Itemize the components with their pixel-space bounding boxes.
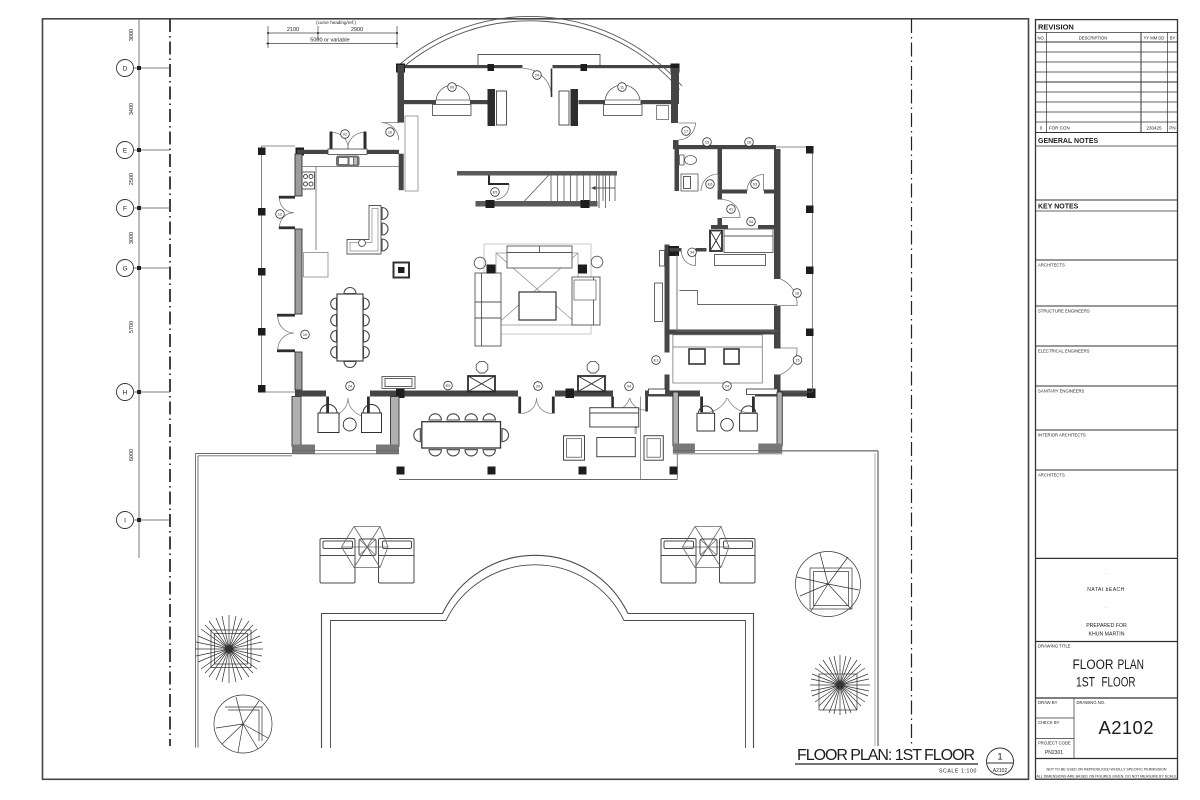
svg-text:E6: E6 (708, 182, 713, 186)
svg-text:E5: E5 (493, 190, 498, 194)
svg-text:·: · (1105, 605, 1107, 610)
svg-text:STRUCTURE ENGINEERS: STRUCTURE ENGINEERS (1038, 309, 1090, 314)
svg-text:E1: E1 (654, 358, 659, 362)
svg-text:I: I (124, 517, 126, 524)
svg-text:D: D (123, 65, 128, 72)
svg-text:ARCHITECTS: ARCHITECTS (1038, 473, 1065, 478)
svg-text:230425: 230425 (1146, 126, 1162, 131)
svg-text:10: 10 (388, 130, 392, 134)
svg-text:KHUN MARTIN: KHUN MARTIN (1089, 632, 1125, 638)
svg-text:3000: 3000 (129, 232, 135, 244)
svg-text:DRAWING TITLE: DRAWING TITLE (1038, 644, 1071, 649)
svg-text:ELECTRICAL ENGINEERS: ELECTRICAL ENGINEERS (1038, 349, 1090, 354)
svg-text:KEY NOTES: KEY NOTES (1038, 204, 1079, 211)
svg-text:H: H (123, 389, 128, 396)
svg-text:17: 17 (684, 129, 688, 133)
svg-text:REVISION: REVISION (1038, 23, 1074, 32)
svg-text:04: 04 (749, 220, 753, 224)
svg-text:20: 20 (536, 384, 540, 388)
svg-text:2100: 2100 (287, 27, 299, 33)
svg-text:PREPARED FOR: PREPARED FOR (1086, 623, 1127, 629)
svg-text:E: E (123, 147, 128, 154)
svg-text:2500: 2500 (129, 173, 135, 185)
svg-text:24: 24 (725, 384, 729, 388)
svg-text:GENERAL NOTES: GENERAL NOTES (1038, 138, 1098, 145)
svg-text:NO.: NO. (1038, 36, 1045, 41)
svg-text:ARCHITECTS: ARCHITECTS (1038, 263, 1065, 268)
svg-text:15: 15 (705, 140, 709, 144)
svg-text:A2102: A2102 (1099, 717, 1154, 738)
svg-text:04: 04 (627, 385, 631, 389)
svg-text:NATAI bEACH: NATAI bEACH (1087, 587, 1125, 593)
svg-text:FOR CON: FOR CON (1049, 126, 1070, 131)
svg-text:YY MM DD: YY MM DD (1144, 36, 1165, 41)
svg-text:DRAW BY: DRAW BY (1038, 700, 1058, 705)
svg-text:ALL DIMENSIONS ARE BASED ON FI: ALL DIMENSIONS ARE BASED ON FIGURES GIVE… (1036, 775, 1177, 779)
svg-text:5700: 5700 (129, 321, 135, 333)
svg-text:SCALE 1:100: SCALE 1:100 (939, 769, 977, 775)
svg-text:NOT TO BE USED OR REPRODUCED W: NOT TO BE USED OR REPRODUCED WHOLLY SPEC… (1046, 768, 1166, 772)
svg-text:3400: 3400 (129, 103, 135, 115)
svg-text:1STFLOOR: 1STFLOOR (1076, 675, 1136, 690)
svg-text:F: F (123, 205, 127, 212)
svg-text:24: 24 (535, 73, 539, 77)
svg-text:24: 24 (348, 384, 352, 388)
svg-text:·: · (1105, 571, 1107, 576)
svg-text:PROJECT CODE: PROJECT CODE (1038, 741, 1071, 746)
svg-text:12: 12 (278, 212, 282, 216)
svg-text:15: 15 (795, 358, 799, 362)
svg-text:INTERIOR ARCHITECTS: INTERIOR ARCHITECTS (1038, 433, 1086, 438)
svg-text:DESCRIPTION: DESCRIPTION (1079, 36, 1108, 41)
svg-text:CHECK BY: CHECK BY (1038, 720, 1060, 725)
svg-text:SANITARY ENGINEERS: SANITARY ENGINEERS (1038, 389, 1085, 394)
svg-text:(curve heading/ref.): (curve heading/ref.) (316, 20, 356, 25)
svg-text:16: 16 (795, 291, 799, 295)
svg-text:34: 34 (690, 251, 694, 255)
svg-text:5000 or variable: 5000 or variable (310, 38, 349, 44)
svg-text:1: 1 (997, 752, 1002, 763)
svg-text:09: 09 (450, 85, 454, 89)
svg-text:BY: BY (1170, 36, 1176, 41)
svg-text:DRAWING NO.: DRAWING NO. (1077, 700, 1106, 705)
svg-text:PN: PN (1169, 126, 1175, 131)
svg-text:16: 16 (747, 140, 751, 144)
svg-text:41: 41 (729, 207, 733, 211)
svg-text:G: G (122, 265, 127, 272)
svg-text:6000: 6000 (634, 426, 638, 434)
svg-text:FLOOR PLAN: 1ST FLOOR: FLOOR PLAN: 1ST FLOOR (797, 747, 975, 764)
svg-text:03: 03 (753, 182, 757, 186)
svg-text:2900: 2900 (351, 27, 363, 33)
svg-text:10: 10 (303, 333, 307, 337)
svg-text:02: 02 (343, 132, 347, 136)
svg-text:6000: 6000 (129, 449, 135, 461)
svg-text:A2102: A2102 (993, 768, 1008, 774)
svg-text:E9: E9 (446, 384, 451, 388)
svg-text:11: 11 (620, 85, 624, 89)
svg-text:PN2301: PN2301 (1045, 750, 1063, 756)
svg-text:3000: 3000 (129, 29, 135, 41)
svg-text:FLOORPLAN: FLOORPLAN (1073, 657, 1145, 672)
